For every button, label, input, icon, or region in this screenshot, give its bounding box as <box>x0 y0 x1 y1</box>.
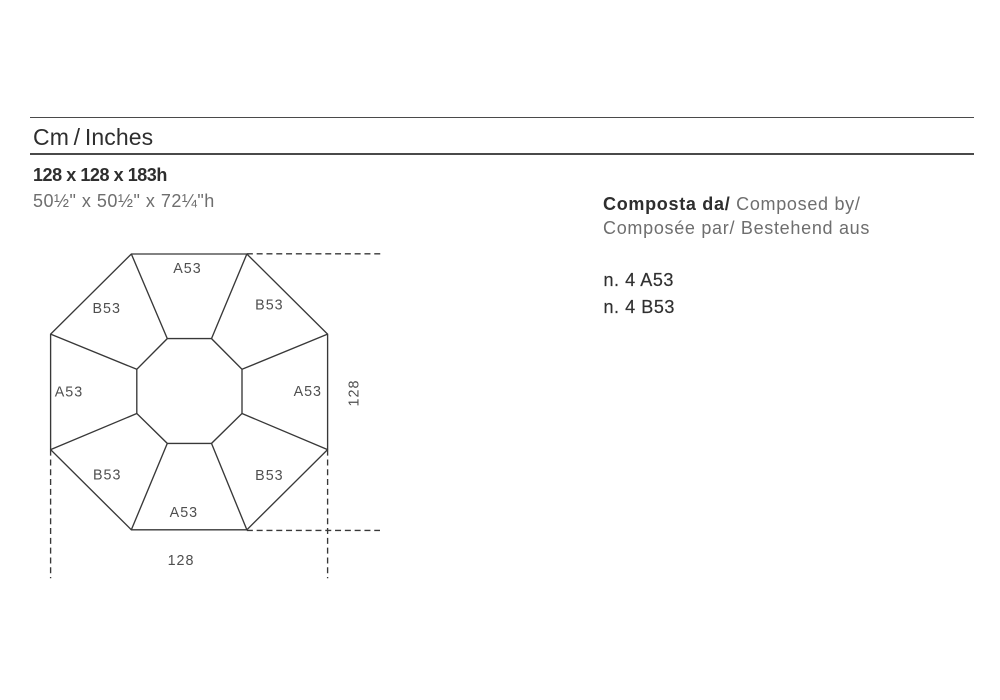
svg-text:B53: B53 <box>92 301 120 317</box>
svg-text:B53: B53 <box>255 298 283 314</box>
svg-text:B53: B53 <box>93 468 121 484</box>
svg-text:B53: B53 <box>255 468 283 484</box>
svg-text:A53: A53 <box>170 505 198 521</box>
svg-text:A53: A53 <box>294 384 322 400</box>
svg-text:A53: A53 <box>173 261 201 277</box>
svg-text:128: 128 <box>168 553 195 569</box>
svg-text:128: 128 <box>347 380 363 407</box>
svg-text:A53: A53 <box>55 385 83 401</box>
